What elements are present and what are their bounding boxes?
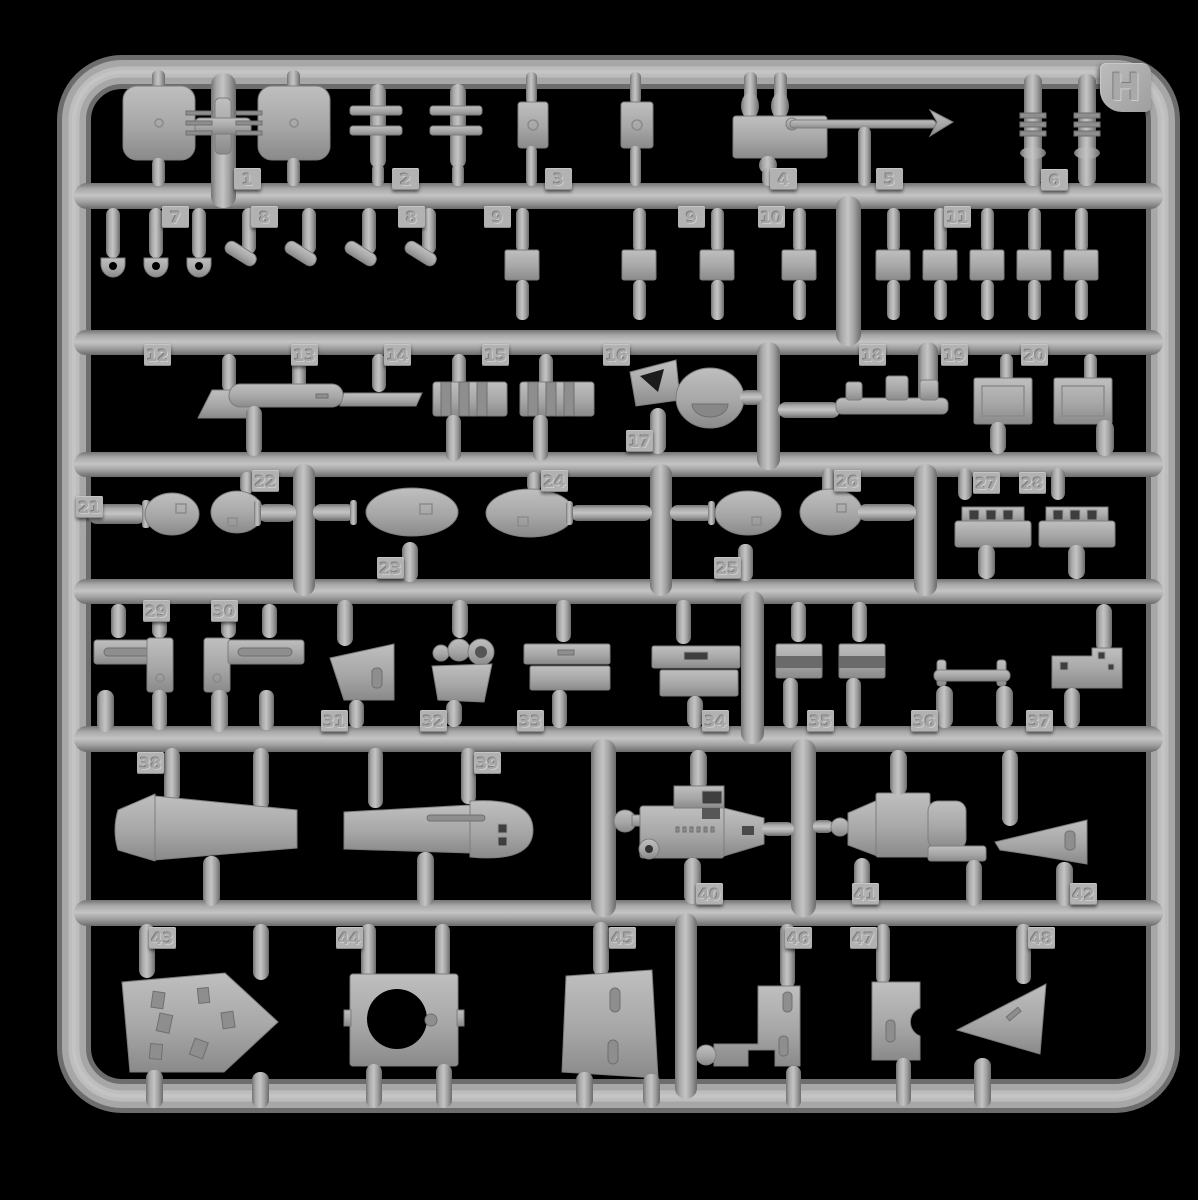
- part-6: [1020, 74, 1100, 186]
- part-28: [1039, 468, 1115, 579]
- part-20: [1054, 354, 1114, 456]
- part-14: [340, 354, 422, 406]
- part-19: [974, 354, 1032, 454]
- part-35: [776, 602, 885, 728]
- part-2: [350, 84, 482, 186]
- part-33: [524, 600, 610, 728]
- part-27: [955, 468, 1031, 579]
- runner-row-2: [74, 330, 1163, 355]
- part-29: [94, 604, 173, 732]
- sprue-letter-plate: H: [1100, 63, 1151, 112]
- part-16: [520, 354, 594, 461]
- part-41: [813, 750, 986, 906]
- part-31: [330, 600, 394, 728]
- part-47: [872, 924, 920, 1106]
- part-18: [778, 376, 948, 418]
- part-15: [433, 354, 507, 461]
- part-13: [229, 354, 343, 456]
- part-17: [630, 360, 762, 454]
- part-9-10-11-boxes: [505, 208, 1098, 320]
- part-30: [204, 604, 304, 732]
- part-39: [344, 748, 533, 906]
- sprue-structure: .rh{fill:url(#gh);} .rv{fill:url(#gv);} …: [0, 0, 1198, 1200]
- part-37: [1052, 604, 1122, 728]
- part-26: [800, 468, 916, 535]
- part-21: [88, 493, 199, 535]
- part-23: [313, 488, 458, 582]
- part-38: [115, 748, 297, 906]
- runner-row-3: [74, 452, 1163, 477]
- part-22: [211, 472, 296, 533]
- part-3: [518, 72, 653, 186]
- runner-row-1: [74, 183, 1163, 209]
- part-32: [432, 600, 494, 727]
- part-42: [995, 750, 1087, 906]
- runner-row-4: [74, 579, 1163, 604]
- runner-row-6: [74, 900, 1163, 926]
- part-24: [486, 472, 652, 537]
- part-8: [223, 208, 439, 268]
- part-7: [101, 208, 211, 277]
- part-4: [733, 72, 827, 186]
- sprue-photo: .rh{fill:url(#gh);} .rv{fill:url(#gv);} …: [0, 0, 1198, 1200]
- runner-row-5: [74, 726, 1163, 752]
- sprue-letter: H: [1110, 69, 1141, 106]
- part-25: [670, 491, 781, 581]
- part-34: [652, 600, 740, 728]
- part-36: [934, 660, 1013, 728]
- part-40: [614, 750, 794, 904]
